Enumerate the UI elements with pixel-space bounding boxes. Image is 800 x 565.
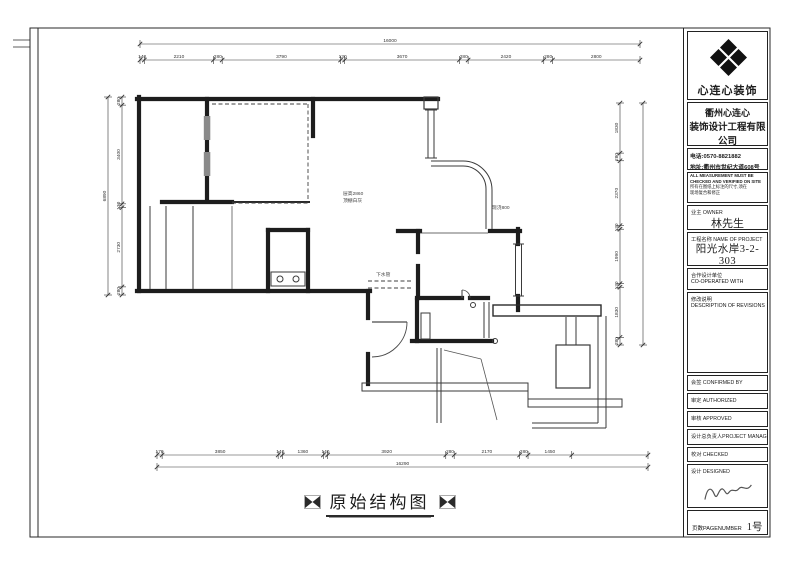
dimension-label: 130 [339,54,347,60]
confirmed-box: 会签 CONFIRMED BY [687,375,768,391]
walls-structural [137,97,520,384]
dimension-label: 2730 [116,242,122,253]
checked-label: 校对 CHECKED [691,451,728,458]
dimension-label: 280 [544,54,552,60]
owner-label: 业主 OWNER [691,209,723,216]
project-name: 阳光水岸3-2-303 [688,241,767,266]
dimension-label: 2800 [591,54,602,60]
dimension-label: 3920 [381,449,392,455]
dimension-label: 140 [321,449,329,455]
revisions-label-en: DESCRIPTION OF REVISIONS [691,303,767,309]
title-block: 心连心装饰 衢州心连心 装饰设计工程有限公司 QU ZHOU XINLIANXI… [683,28,771,537]
coop-label-en: CO-OPERATED WITH [691,279,767,285]
designer-signature [700,479,760,503]
dimension-label: 3850 [215,449,226,455]
note-drain: 下水管 [376,273,390,279]
dimension-label: 2210 [174,54,185,60]
dimension-label: 3400 [116,149,122,160]
dimension-label: 140 [138,54,146,60]
logo-box: 心连心装饰 [687,31,768,100]
dimension-label: 2370 [614,188,620,199]
revisions-label-cn: 修改说明 [691,296,767,303]
checked-box: 校对 CHECKED [687,447,768,462]
project-box: 工程名称 NAME OF PROJECT 阳光水岸3-2-303 [687,232,768,266]
note-ceiling-finish: 顶棚白灰 [343,199,362,205]
dimension-label: 130 [116,201,122,209]
revisions-box: 修改说明 DESCRIPTION OF REVISIONS [687,292,768,373]
dimension-label: 1990 [614,251,620,262]
dimension-label: 280 [446,449,454,455]
dimension-label: 2170 [482,449,493,455]
page-number: 1号 [747,519,763,534]
dimension-label: 16000 [383,38,397,44]
thin-lines [150,97,622,428]
company-address: 地址:衢州市世纪大道608号 [690,162,767,170]
dimension-label: 3790 [276,54,287,60]
note-cast-slab: 现浇800 [492,206,510,212]
dimension-label: 280 [116,287,122,295]
dimension-label: 6890 [102,190,108,201]
approved-label: 审核 APPROVED [691,415,732,422]
manager-label: 设计总负责人PROJECT MANAGER [691,433,768,440]
authorized-box: 审定 AUTHORIZED [687,393,768,409]
dimension-label: 16290 [396,461,410,467]
drawing-sheet: 1600014022102803790130367028024202802800… [0,0,800,565]
project-label: 工程名称 NAME OF PROJECT [691,236,762,243]
company-box: 衢州心连心 装饰设计工程有限公司 QU ZHOU XINLIANXIN DECO… [687,102,768,146]
bowtie-icon [304,495,321,509]
plan-title: 原始结构图 [292,487,467,517]
coop-label-cn: 合作设计单位 [691,272,767,279]
page-box: 页数PAGENUMBER 1号 [687,510,768,535]
authorized-label: 审定 AUTHORIZED [691,397,737,404]
designed-box: 设计 DESIGNED [687,464,768,508]
company-name-cn-2: 装饰设计工程有限公司 [688,119,767,146]
dimension-label: 130 [614,223,620,231]
dimension-lines: 1600014022102803790130367028024202802800… [102,38,650,471]
contact-box: 电话:0570-8821882 地址:衢州市世纪大道608号 [687,148,768,170]
dimension-label: 130 [614,281,620,289]
dimension-label: 280 [520,449,528,455]
plan-title-text: 原始结构图 [326,488,434,517]
page-label: 页数PAGENUMBER [692,524,742,532]
company-name-cn-1: 衢州心连心 [688,106,767,119]
bowtie-icon [439,495,456,509]
dimension-label: 3670 [397,54,408,60]
designed-label: 设计 DESIGNED [691,468,730,475]
dimension-label: 280 [214,54,222,60]
note-ceiling-height: 层高2860 [343,192,363,198]
notice-box: ALL MEASUREMENT MUST BE CHECKED AND VERI… [687,172,768,203]
dimension-label: 140 [276,449,284,455]
manager-box: 设计总负责人PROJECT MANAGER [687,429,768,445]
logo-text: 心连心装饰 [688,82,767,98]
coop-box: 合作设计单位 CO-OPERATED WITH [687,268,768,290]
dimension-label: 280 [614,153,620,161]
owner-name: 林先生 [688,215,767,230]
dimension-label: 280 [614,337,620,345]
company-logo-icon [708,37,749,78]
owner-box: 业主 OWNER 林先生 [687,205,768,230]
dimension-label: 280 [116,97,122,105]
dimension-label: 280 [460,54,468,60]
dimension-label: 1830 [614,307,620,318]
sheet-frame [13,28,770,537]
dimension-label: 1450 [545,449,556,455]
dimension-label: 2420 [501,54,512,60]
confirmed-label: 会签 CONFIRMED BY [691,379,743,386]
floor-plan-svg: 1600014022102803790130367028024202802800… [0,0,800,565]
approved-box: 审核 APPROVED [687,411,768,427]
dimension-label: 1360 [298,449,309,455]
dimension-label: 1830 [614,122,620,133]
company-phone: 电话:0570-8821882 [690,151,767,160]
dimension-label: 170 [156,449,164,455]
notice-cn-2: 现场复合和修正 [690,190,767,196]
